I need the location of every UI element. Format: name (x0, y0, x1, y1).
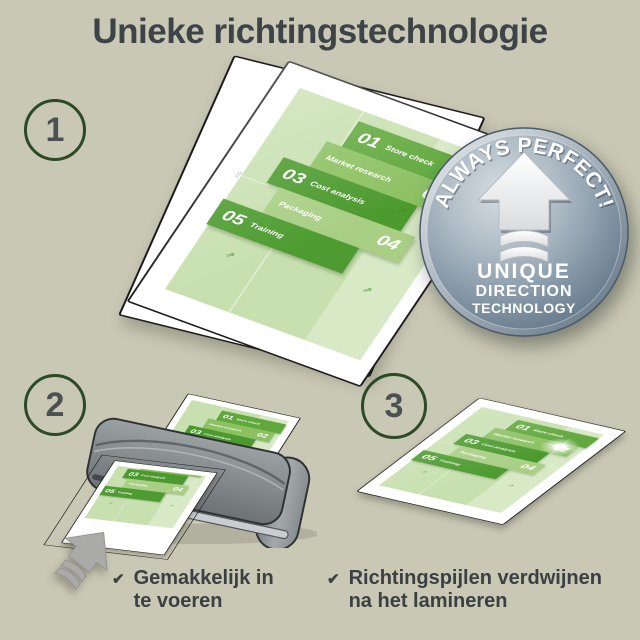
badge-line-3: TECHNOLOGY (472, 300, 576, 316)
block-number: 04 (172, 486, 184, 492)
block-label: Packaging (277, 200, 323, 221)
step-number: 1 (46, 111, 65, 150)
block-number: 03 (127, 471, 139, 477)
caption-line: Gemakkelijk in (134, 567, 274, 590)
check-icon: ✔ (327, 570, 340, 613)
step-number: 3 (385, 387, 404, 426)
doodle-arrow-icon: ⇗ (360, 284, 374, 296)
block-number: 04 (373, 232, 403, 253)
step-number: 2 (46, 386, 65, 425)
caption-step-2: ✔ Gemakkelijk in te voeren (112, 567, 274, 613)
doodle-arrow-icon: ⇗ (419, 470, 429, 475)
doodle-arrow-icon: ⇗ (506, 483, 516, 488)
block-number: 03 (461, 437, 481, 445)
block-number: 05 (419, 454, 439, 462)
block-number: 01 (513, 423, 533, 431)
block-label: Packaging (458, 451, 487, 459)
block-label: Training (117, 491, 133, 495)
doodle-arrow-icon: ⇗ (223, 249, 237, 261)
step-1-marker: 1 (24, 99, 86, 161)
badge-line-2: DIRECTION (476, 283, 573, 300)
block-label: Packaging (128, 482, 148, 486)
block-number: 01 (354, 130, 384, 151)
caption-line: na het lamineren (349, 590, 602, 613)
block-number: 05 (219, 208, 249, 229)
block-number: 03 (279, 166, 309, 187)
infographic-canvas: Unieke richtingstechnologie 1 ⇧ ⇧ ⇧ ⇧ La… (0, 0, 640, 640)
block-number: 04 (518, 463, 538, 471)
doodle-arrow-icon: ⇗ (169, 504, 175, 508)
block-label: Cost analysis (140, 474, 166, 479)
badge-graphic: ALWAYS PERFECT! ALWAYS PERFECT! UNIQUE D… (418, 126, 630, 338)
block-label: Training (438, 459, 462, 466)
badge-line-1: UNIQUE (477, 260, 571, 283)
always-perfect-badge: ALWAYS PERFECT! ALWAYS PERFECT! UNIQUE D… (418, 126, 630, 338)
caption-step-3: ✔ Richtingspijlen verdwijnen na het lami… (327, 567, 602, 613)
block-number: 02 (551, 445, 571, 453)
doodle-arrow-icon: ⇗ (108, 501, 114, 505)
caption-line: te voeren (134, 590, 274, 613)
step-3-marker: 3 (361, 373, 427, 439)
block-number: 05 (104, 488, 116, 494)
caption-line: Richtingspijlen verdwijnen (349, 567, 602, 590)
page-title: Unieke richtingstechnologie (0, 12, 640, 52)
check-icon: ✔ (112, 570, 125, 613)
block-label: Training (248, 221, 285, 239)
